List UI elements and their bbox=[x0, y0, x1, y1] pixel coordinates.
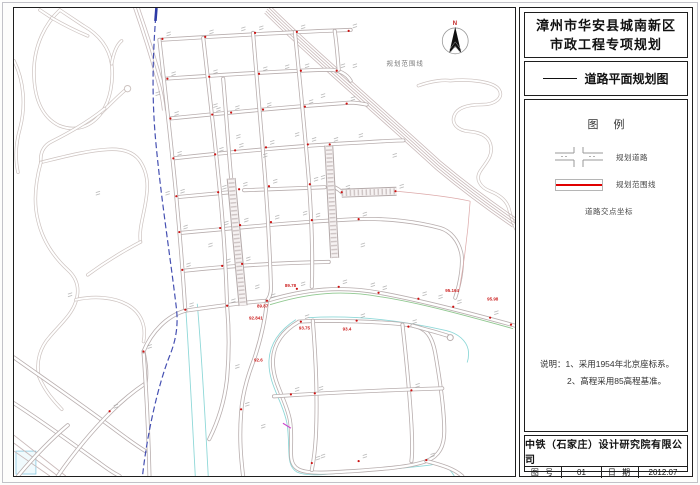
sheet-info-row: 图 号 01 日 期 2012.07 bbox=[525, 467, 687, 478]
svg-text:92.6: 92.6 bbox=[254, 357, 263, 362]
legend-item-boundary: 规划范围线 bbox=[555, 178, 687, 191]
project-title-line2: 市政工程专项规划 bbox=[550, 35, 662, 55]
title-panel: 漳州市华安县城南新区 市政工程专项规划 道路平面规划图 图 例 规划道路 bbox=[519, 7, 693, 477]
legend-item-coordinates: 道路交点坐标 bbox=[585, 205, 687, 217]
project-title: 漳州市华安县城南新区 市政工程专项规划 bbox=[524, 12, 688, 58]
road-bulb bbox=[447, 335, 453, 341]
date-label: 日 期 bbox=[602, 467, 639, 478]
drawing-sheet: 95.16495.9889.7889.8792.84193.492.693.75… bbox=[0, 0, 700, 485]
legend-item-planned-road: 规划道路 bbox=[555, 148, 687, 166]
cul-de-sac bbox=[124, 85, 130, 91]
notes: 说明：1、采用1954年北京座标系。 2、高程采用85高程基准。 bbox=[540, 356, 674, 390]
sheet-no-label: 图 号 bbox=[525, 467, 562, 478]
legend-label-boundary: 规划范围线 bbox=[616, 179, 656, 190]
title-block-footer: 中铁（石家庄）设计研究院有限公司 图 号 01 日 期 2012.07 bbox=[524, 435, 688, 472]
svg-text:92.841: 92.841 bbox=[249, 316, 263, 321]
drawing-name: 道路平面规划图 bbox=[584, 70, 668, 87]
note-2: 2、高程采用85高程基准。 bbox=[540, 373, 674, 390]
road-cross-icon bbox=[555, 147, 603, 167]
company-name: 中铁（石家庄）设计研究院有限公司 bbox=[525, 436, 687, 467]
north-arrow: N bbox=[442, 21, 468, 54]
date-value: 2012.07 bbox=[639, 467, 687, 478]
svg-text:89.78: 89.78 bbox=[285, 283, 297, 288]
red-line-icon bbox=[555, 179, 603, 191]
svg-text:89.87: 89.87 bbox=[257, 304, 269, 309]
legend-box: 图 例 规划道路 规划范围线 道路交点坐标 说明：1、 bbox=[524, 99, 688, 432]
drawing-name-box: 道路平面规划图 bbox=[524, 61, 688, 96]
map-frame: 95.16495.9889.7889.8792.84193.492.693.75… bbox=[13, 7, 516, 477]
planned-roads bbox=[14, 30, 515, 476]
svg-text:93.75: 93.75 bbox=[299, 326, 311, 331]
note-1: 说明：1、采用1954年北京座标系。 bbox=[540, 356, 674, 373]
north-label: N bbox=[453, 21, 457, 27]
legend-label-road: 规划道路 bbox=[616, 152, 648, 163]
svg-text:93.4: 93.4 bbox=[343, 327, 352, 332]
svg-text:95.98: 95.98 bbox=[487, 297, 499, 302]
legend-label-coordinates: 道路交点坐标 bbox=[585, 206, 633, 217]
project-title-line1: 漳州市华安县城南新区 bbox=[536, 16, 676, 36]
svg-text:95.164: 95.164 bbox=[445, 288, 459, 293]
dash-line bbox=[543, 78, 577, 79]
planning-map: 95.16495.9889.7889.8792.84193.492.693.75… bbox=[14, 8, 515, 476]
boundary-line-label: 规划范围线 bbox=[387, 59, 424, 68]
sheet-no-value: 01 bbox=[562, 467, 602, 478]
legend-title: 图 例 bbox=[525, 116, 687, 132]
